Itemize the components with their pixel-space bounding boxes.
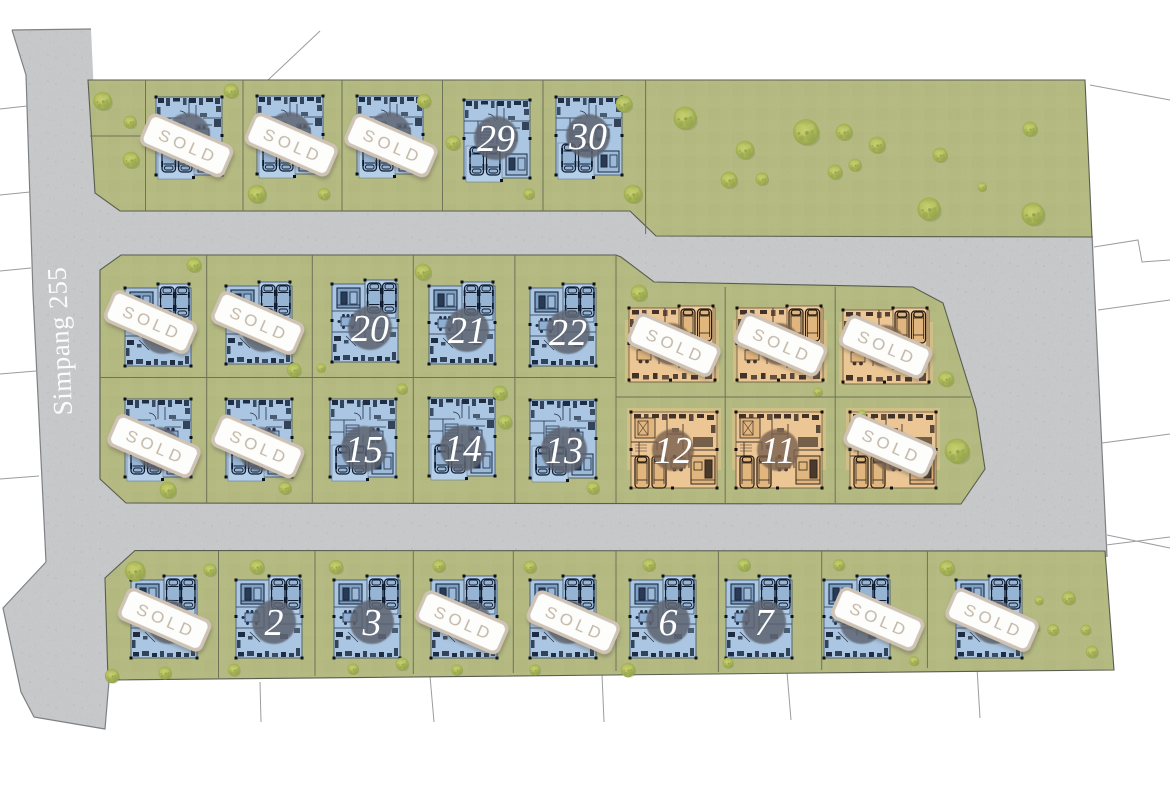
svg-text:15: 15 xyxy=(345,429,383,471)
svg-text:30: 30 xyxy=(568,116,607,158)
svg-text:14: 14 xyxy=(444,428,482,470)
svg-text:20: 20 xyxy=(351,308,389,350)
svg-text:13: 13 xyxy=(545,430,583,472)
svg-text:2: 2 xyxy=(265,602,284,644)
svg-text:6: 6 xyxy=(659,602,678,644)
svg-text:11: 11 xyxy=(760,430,795,472)
svg-text:12: 12 xyxy=(654,430,692,472)
svg-text:7: 7 xyxy=(755,602,776,644)
svg-text:21: 21 xyxy=(448,310,486,352)
svg-text:22: 22 xyxy=(549,312,587,354)
svg-text:29: 29 xyxy=(477,118,515,160)
svg-text:3: 3 xyxy=(362,602,382,644)
